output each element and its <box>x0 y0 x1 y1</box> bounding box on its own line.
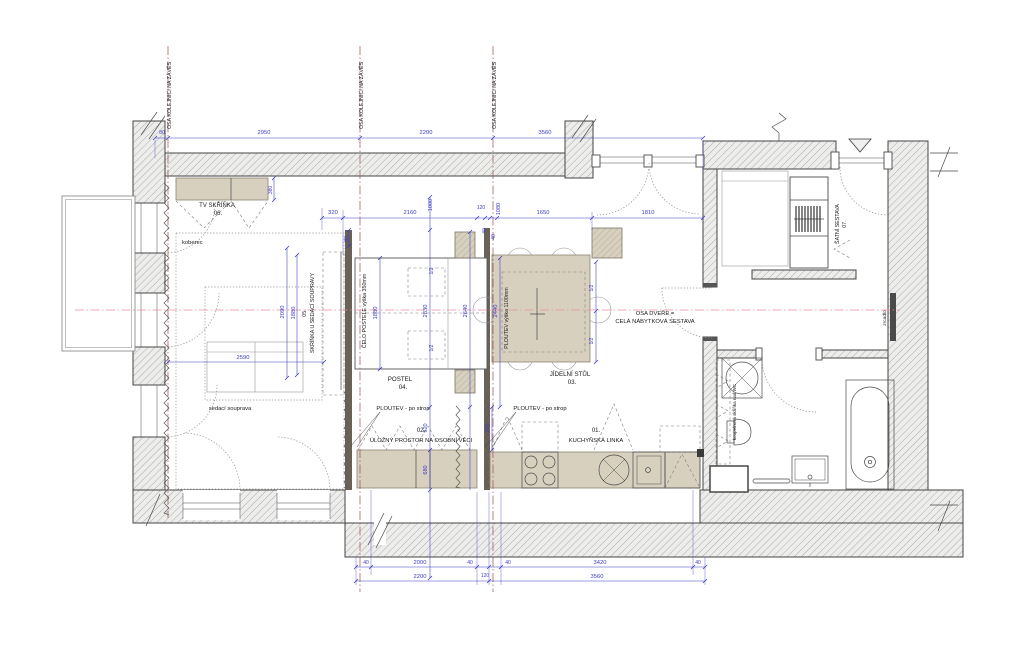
door-axis-label-2: CELÁ NÁBYTKOVÁ SESTAVA <box>615 318 694 325</box>
dim: 1000 <box>428 199 434 211</box>
sofa-cabinet-label: SKŘÍŇKA U SEDACÍ SOUPRAVY <box>308 273 316 353</box>
dining-table-number: 03. <box>568 379 577 386</box>
entrance-jamb-left <box>831 152 839 169</box>
dim: 40 <box>467 560 473 566</box>
dining-table-label: JÍDELNÍ STŮL <box>550 371 591 378</box>
bathroom-door-swing <box>762 358 816 412</box>
dim: 1/2 <box>589 284 595 291</box>
dim: 2000 <box>414 560 427 566</box>
wardrobe-stub-wall <box>752 270 856 279</box>
bathroom <box>710 348 894 492</box>
dim: 2830 <box>423 305 429 318</box>
living-furniture <box>176 178 344 400</box>
bottom-window-1 <box>183 490 240 520</box>
alignment-block <box>592 228 622 258</box>
bed-number: 04. <box>399 384 408 391</box>
kitchen-counter <box>490 452 700 488</box>
towel-rail <box>753 479 790 483</box>
dim: 2640 <box>463 305 469 318</box>
dim: 3560 <box>539 130 552 136</box>
axis-label: OSA KOLEJNICI NA ZÁVĚS <box>357 61 365 129</box>
hood-outline <box>522 422 558 452</box>
left-windows <box>62 196 219 437</box>
top-right-wall <box>703 141 836 169</box>
dim: 40 <box>695 560 701 566</box>
dim: 3560 <box>591 574 604 580</box>
double-door-swings <box>597 163 700 215</box>
dim: 80 <box>159 130 165 136</box>
dim: 1880 <box>291 307 297 320</box>
tv-cabinet-number: 06. <box>214 211 223 217</box>
entrance-door-swing <box>840 167 888 215</box>
dim: 1/2 <box>429 267 435 274</box>
balcony <box>62 196 135 351</box>
axis-label: OSA KOLEJNICI NA ZÁVĚS <box>165 61 173 129</box>
fin-ceiling-label-right: PLOUTEV - po strop <box>513 406 566 412</box>
dim: 380 <box>268 186 274 195</box>
dim: 80 <box>344 236 350 242</box>
dim: 2590 <box>237 355 250 361</box>
double-door <box>592 155 704 215</box>
wardrobe-number: 07. <box>842 220 848 227</box>
fin-height-label: PLOUTEV výška 1100mm <box>504 287 510 349</box>
storage-cabinets <box>357 450 477 488</box>
shaft <box>710 466 748 492</box>
dining-area <box>473 228 622 370</box>
sofa-label: sedací souprava <box>209 406 252 412</box>
dim: 1/2 <box>429 344 435 351</box>
dim: 1810 <box>642 210 655 216</box>
headboard-label: ČELO POSTELE výška 350mm <box>361 273 368 348</box>
floor-plan-drawing: 80 2950 2200 3560 320 2160 120 40 40 100… <box>0 0 1024 657</box>
wardrobe-label: ŠATNÍ SESTAVA <box>834 204 841 244</box>
storage-number: 02. <box>417 428 426 434</box>
window-swing-2 <box>277 437 330 490</box>
dim: 1650 <box>537 210 550 216</box>
tv-cabinet-label: TV SKŘÍŇKA <box>199 201 235 209</box>
dim: 3420 <box>594 560 607 566</box>
axis-label: OSA KOLEJNICI NA ZÁVĚS <box>490 61 498 129</box>
bathroom-cabinet-label: koupelnová skříňka nad WC <box>732 383 737 440</box>
nightstand-bottom <box>455 370 475 393</box>
window-swing-4 <box>165 293 219 347</box>
dim: 1080 <box>496 203 502 215</box>
bathroom-wall-left <box>717 350 756 358</box>
dim: 1880 <box>373 307 379 320</box>
bathroom-cabinet <box>716 360 730 464</box>
dim: 120 <box>477 205 486 211</box>
text-labels: OSA KOLEJNICI NA ZÁVĚS OSA KOLEJNICI NA … <box>165 61 888 447</box>
entry-partition-upper <box>703 169 717 287</box>
dim: 1/2 <box>589 337 595 344</box>
top-wall <box>165 153 565 176</box>
dim: 120 <box>481 573 490 579</box>
entrance-jamb-right <box>884 152 892 169</box>
kitchen-number: 01. <box>592 428 601 434</box>
carpet-label: koberec <box>182 240 203 246</box>
dim: 40 <box>491 234 497 240</box>
dim: 320 <box>328 210 338 216</box>
tv-cabinet <box>176 178 268 200</box>
bottom-wall-band <box>345 523 963 557</box>
bed-label: POSTEL <box>388 376 413 383</box>
sofa-cabinet-number: 05. <box>302 309 308 316</box>
dim: 2200 <box>414 574 427 580</box>
dim: 980 <box>485 423 491 432</box>
dim: 2200 <box>420 130 433 136</box>
storage-kitchen <box>357 404 704 488</box>
sofa-outline <box>205 287 322 400</box>
dim: 2090 <box>280 306 286 319</box>
counter-end-post <box>697 449 704 457</box>
nightstand-top <box>455 232 475 258</box>
dim: 2440 <box>493 305 499 318</box>
carpet-outline <box>176 233 344 489</box>
dim: 2950 <box>258 130 271 136</box>
window-swing-1 <box>183 433 240 490</box>
dim: 680 <box>423 465 429 474</box>
entrance-marker-triangle <box>849 139 871 152</box>
floor-plan-canvas: 80 2950 2200 3560 320 2160 120 40 40 100… <box>0 0 1024 657</box>
storage-label: ÚLOŽNÝ PROSTOR NA OSOBNÍ VĚCI <box>370 436 473 444</box>
left-wall-pier-1 <box>133 253 165 293</box>
mirror <box>890 293 896 341</box>
bathroom-south-wall <box>700 490 963 523</box>
mirror-label: zrcadlo <box>882 310 888 326</box>
dim: 40 <box>363 560 369 566</box>
dim: 40 <box>505 560 511 566</box>
left-wall-pier-2 <box>133 347 165 385</box>
bottom-window-2 <box>277 490 330 520</box>
dim: 2160 <box>404 210 417 216</box>
dim: 40 <box>482 228 488 234</box>
bathroom-wall-right <box>822 350 888 358</box>
fin-ceiling-label-left: PLOUTEV - po strop <box>376 406 429 412</box>
kitchen-label: KUCHYŇSKÁ LINKA <box>569 437 624 444</box>
entry-niche <box>722 171 788 266</box>
headboard-fin <box>345 230 352 490</box>
door-axis-label-1: OSA DVEŘE = <box>636 309 675 317</box>
